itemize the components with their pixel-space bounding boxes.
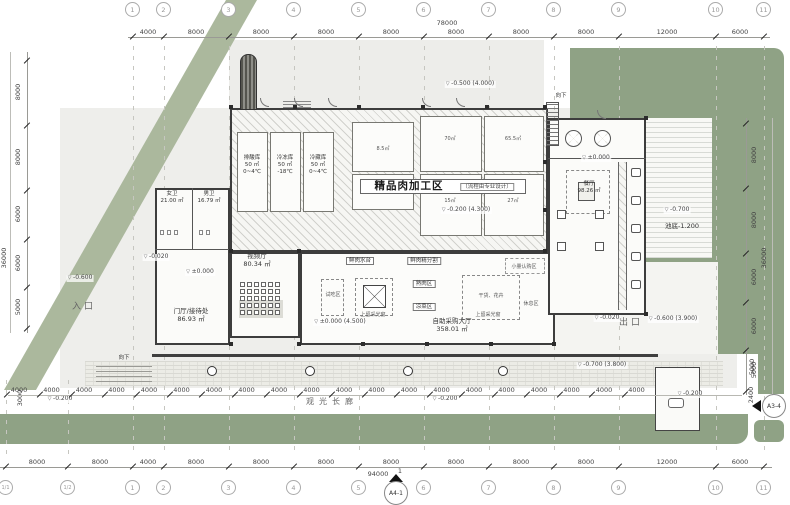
column [357,105,361,109]
green-connector-east [758,354,784,394]
square-table [595,242,604,251]
seat [240,310,245,315]
seat [254,296,259,301]
grid-bubble: 11 [756,480,771,495]
total-dim-bottom: 94000 [368,470,389,478]
plan-label: -0.020 [594,315,621,322]
dim-line-bottom [0,467,772,468]
exit-label: 出口 [619,319,643,329]
dim-label: 8000 [578,28,595,36]
column [229,249,233,253]
skylight [363,285,386,308]
dim-line-left-total [10,52,11,333]
plan-label: 70㎡ [444,137,455,143]
dim-label: 8000 [750,147,758,164]
plan-label: -0.700 (3.800) [577,362,628,369]
dim-label: 4000 [108,386,125,394]
dim-label: 8000 [448,28,465,36]
plan-label: 排酸库 [244,155,261,161]
canopy-edge [152,354,658,357]
column [297,249,301,253]
seat [268,282,273,287]
plan-label: -0.200 (4.300) [441,207,492,214]
women-wc-area: 21.00 ㎡ [161,198,184,204]
chimney [240,54,257,110]
seat [247,303,252,308]
plan-label: -0.200 [432,396,459,403]
booth-table [631,280,641,289]
green-band-south [0,414,748,444]
grid-bubble: 3 [221,2,236,17]
plan-label: 凉菜区 [413,303,436,311]
seat [261,296,266,301]
seat [268,289,273,294]
section-marker-triangle [752,400,761,412]
seat [247,310,252,315]
section-marker-a41: A4-1 [384,481,408,505]
seat [268,303,273,308]
seat [254,303,259,308]
dim-label: 4000 [238,386,255,394]
column [644,116,648,120]
grid-bubble: 5 [351,480,366,495]
column [361,342,365,346]
column [229,105,233,109]
market-hall-area: 358.01 ㎡ [436,326,467,333]
grid-bubble: 1 [125,2,140,17]
plan-label: -0.020 [143,254,170,261]
colonnade-column [207,366,217,376]
dim-label: 8000 [318,458,335,466]
buffet-counter [618,162,627,310]
green-tail-southeast [754,420,784,442]
plan-label: 冷冻库 [277,155,294,161]
wc-stall [199,230,203,235]
lobby-area: 86.93 ㎡ [177,316,204,323]
seat [261,282,266,287]
plan-label: 池底-1.200 [665,223,699,230]
grid-bubble: 11 [756,2,771,17]
dim-line-right-total [772,118,773,395]
dim-label: 6000 [750,318,758,335]
grid-line [6,380,7,458]
grid-bubble: 7 [481,480,496,495]
dim-line-colonnade [8,395,742,396]
seat [247,282,252,287]
plan-label: -0.600 [67,275,94,282]
toilet-wall [155,249,230,250]
dim-label: 8000 [448,458,465,466]
dim-label: 8000 [14,84,22,101]
dim-label: 8000 [92,458,109,466]
dim-label: 4000 [140,28,157,36]
plan-label: 冷藏库 [310,155,327,161]
colonnade-column [403,366,413,376]
column [543,208,547,212]
plan-label: 鲜肉水台 [346,257,374,265]
dim-label: 4000 [368,386,385,394]
booth-table [631,224,641,233]
dim-label: 6000 [750,269,758,286]
column [297,342,301,346]
grid-bubble: 6 [416,480,431,495]
zone-title: 精品肉加工区 [375,181,444,193]
wc-stall [174,230,178,235]
seat [247,296,252,301]
plan-label: 试吃区 [325,293,340,299]
seat [268,296,273,301]
column [552,342,556,346]
plan-label: -0.500 (4.000) [445,81,496,88]
men-wc-label: 男卫 [203,191,214,197]
dim-label: 4000 [433,386,450,394]
dim-label: 5000 [750,362,758,379]
dim-label: 8000 [188,28,205,36]
dim-label: 4000 [206,386,223,394]
wc-stall [206,230,210,235]
column [543,249,547,253]
grid-bubble: 1 [125,480,140,495]
column [489,342,493,346]
dim-label: 8000 [383,458,400,466]
plan-label: 8.5㎡ [377,147,390,153]
dim-label: 4000 [466,386,483,394]
section-marker-a34: A3-4 [762,394,786,418]
down-label: 向下 [118,355,129,361]
column [421,105,425,109]
booth-table [631,196,641,205]
total-dim-top: 78000 [437,19,458,27]
dim-label: 4000 [401,386,418,394]
video-hall-area: 80.34 ㎡ [243,261,270,268]
dim-label: 4000 [173,386,190,394]
plan-label: ±0.000 (4.500) [313,319,366,326]
round-table [594,130,611,147]
plan-label: 0~4℃ [243,169,261,175]
entrance-label: 入口 [72,303,96,313]
women-wc-label: 女卫 [166,191,177,197]
dim-line-right [746,118,747,395]
dim-label: 8000 [188,458,205,466]
work-room [420,116,482,172]
seat [275,296,280,301]
grid-bubble: 3 [221,480,236,495]
square-table [557,242,566,251]
plan-label: 0~4℃ [309,169,327,175]
booth-table [631,252,641,261]
plan-label: 鲜肉精分割 [407,257,441,265]
dim-label: 8000 [253,458,270,466]
total-dim-left: 36000 [0,248,8,269]
pond [642,118,712,258]
plan-label: -0.600 (3.900) [648,316,699,323]
dim-label: 6000 [732,458,749,466]
seat [254,310,259,315]
dim-label: 6000 [732,28,749,36]
site-area-north [229,40,544,108]
down-label: 向下 [555,93,566,99]
dining-area: 98.26 ㎡ [578,188,601,194]
grid-bubble: 8 [546,480,561,495]
grid-bubble: 9 [611,480,626,495]
dim-label: 5000 [14,299,22,316]
dim-label: 8000 [14,149,22,166]
dim-label: 4000 [140,458,157,466]
square-table [595,210,604,219]
seat [261,303,266,308]
grid-bubble: 10 [708,2,723,17]
column [543,105,547,109]
seat [254,282,259,287]
dim-label: 6000 [14,206,22,223]
corridor-label: 观光长廊 [306,398,358,407]
dim-label: 4000 [141,386,158,394]
total-dim-right: 36000 [760,248,768,269]
plan-label: -18℃ [277,169,292,175]
column [229,342,233,346]
dim-label: 4000 [11,386,28,394]
section-marker-a41-label: A4-1 [389,490,403,497]
grid-bubble: 8 [546,2,561,17]
seat [240,296,245,301]
dim-label: 8000 [578,458,595,466]
plan-label: 65.5㎡ [505,137,521,143]
plan-label: 50 ㎡ [311,162,325,168]
seat [275,282,280,287]
grid-bubble: 4 [286,2,301,17]
booth-table [631,168,641,177]
guard-booth-fixture [668,398,684,408]
seat [240,289,245,294]
plan-label: 熟肉区 [413,280,436,288]
grid-bubble: 1/2 [60,480,75,495]
steps-southwest [96,362,152,382]
dim-label: 4000 [76,386,93,394]
dim-label: 8000 [513,28,530,36]
dim-label: 8000 [318,28,335,36]
dim-line-top [128,37,770,38]
grid-bubble: 5 [351,2,366,17]
plan-label: 27㎡ [507,199,518,205]
seat [247,289,252,294]
plan-label: ±0.000 [581,155,611,162]
seat [254,289,259,294]
men-wc-area: 16.79 ㎡ [198,198,221,204]
plan-label: 50 ㎡ [245,162,259,168]
plan-label: ±0.000 [185,269,215,276]
work-room [484,116,544,172]
dim-label: 4000 [271,386,288,394]
dim-label: 8000 [750,212,758,229]
dim-label: 8000 [383,28,400,36]
dim-label: 4000 [563,386,580,394]
grid-bubble: 6 [416,2,431,17]
seat [240,282,245,287]
square-table [557,210,566,219]
dim-label: 4000 [336,386,353,394]
grid-line [68,380,69,458]
toilet-divider [192,188,193,250]
column [425,342,429,346]
column [543,160,547,164]
dim-label: 8000 [253,28,270,36]
grid-bubble: 9 [611,2,626,17]
colonnade-column [498,366,508,376]
plan-label: -0.700 [664,207,691,214]
seat [240,303,245,308]
dim-label: 12000 [657,28,678,36]
seat [261,310,266,315]
grid-bubble: 1/1 [0,480,13,495]
grid-bubble: 2 [156,2,171,17]
round-table [565,130,582,147]
grid-bubble: 7 [481,2,496,17]
grid-bubble: 4 [286,480,301,495]
column [293,105,297,109]
seat [261,289,266,294]
dim-label: 12000 [657,458,678,466]
dim-label: 4000 [596,386,613,394]
seat [268,310,273,315]
plan-label: 休息区 [523,302,538,308]
grid-bubble: 10 [708,480,723,495]
dim-label: 8000 [513,458,530,466]
floor-plan-canvas: 精品肉加工区 （流程由专业设计） 入口出口观光长廊向下向下视频厅80.34 ㎡女… [0,0,790,505]
grid-bubble: 2 [156,480,171,495]
plan-label: 上留采光窗 [475,313,500,319]
dim-label: 4000 [43,386,60,394]
plan-label: 15㎡ [444,199,455,205]
seat [275,289,280,294]
seat [275,310,280,315]
wc-stall [160,230,164,235]
dim-label: 4000 [531,386,548,394]
dim-label: 4000 [628,386,645,394]
section-marker-a34-label: A3-4 [767,403,781,410]
dim-label: 6000 [14,255,22,272]
zone-title-note: （流程由专业设计） [460,183,514,191]
seat [275,303,280,308]
plan-label: 干货、花卉 [478,294,503,300]
stairs-northeast [546,102,559,146]
plan-label: 50 ㎡ [278,162,292,168]
dim-label: 8000 [29,458,46,466]
plan-label: 小量认购区 [511,265,536,271]
colonnade-column [305,366,315,376]
dim-label: 4000 [498,386,515,394]
dining-label: 餐厅 [583,181,594,187]
wc-stall [167,230,171,235]
dim-line-left [27,52,28,333]
dim-label: 4000 [303,386,320,394]
column [485,105,489,109]
